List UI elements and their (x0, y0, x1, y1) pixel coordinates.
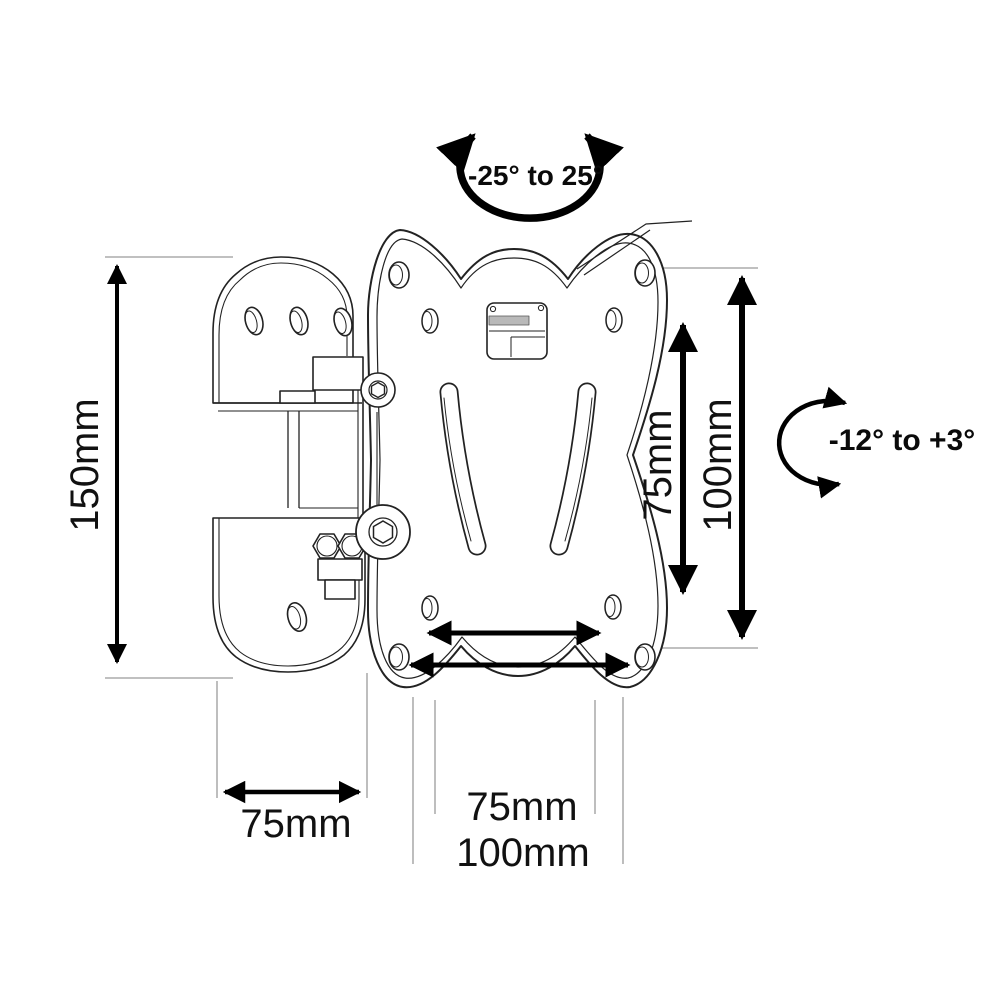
vesa-horizontal-75-label: 75mm (466, 785, 577, 829)
wall-plate (213, 257, 365, 672)
clip-band (489, 316, 529, 325)
wall-mount-diagram: -25° to 25° -12° to +3° 150mm 75mm 75mm … (0, 0, 1000, 1000)
vesa-horizontal-100-label: 100mm (456, 831, 589, 875)
vesa-center-clip (487, 303, 547, 359)
swivel-range-label: -25° to 25° (468, 160, 604, 191)
height-dimension-label: 150mm (63, 398, 107, 531)
hinge-flange (280, 391, 315, 403)
hinge-top-block (313, 357, 363, 390)
lower-pivot-bolt (356, 505, 410, 559)
vesa-plate-outline (368, 230, 667, 687)
upper-pivot-bolt (361, 373, 395, 407)
wall-width-dimension-label: 75mm (240, 802, 351, 846)
wall-plate-fold-lines (213, 390, 363, 518)
vesa-vertical-75-label: 75mm (636, 409, 680, 520)
tilt-range-label: -12° to +3° (829, 424, 976, 457)
vesa-vertical-100-label: 100mm (696, 398, 740, 531)
hinge-lower-tab (325, 580, 355, 599)
hinge-lower-block (318, 559, 362, 580)
technical-drawing-page: -25° to 25° -12° to +3° 150mm 75mm 75mm … (0, 0, 1000, 1000)
